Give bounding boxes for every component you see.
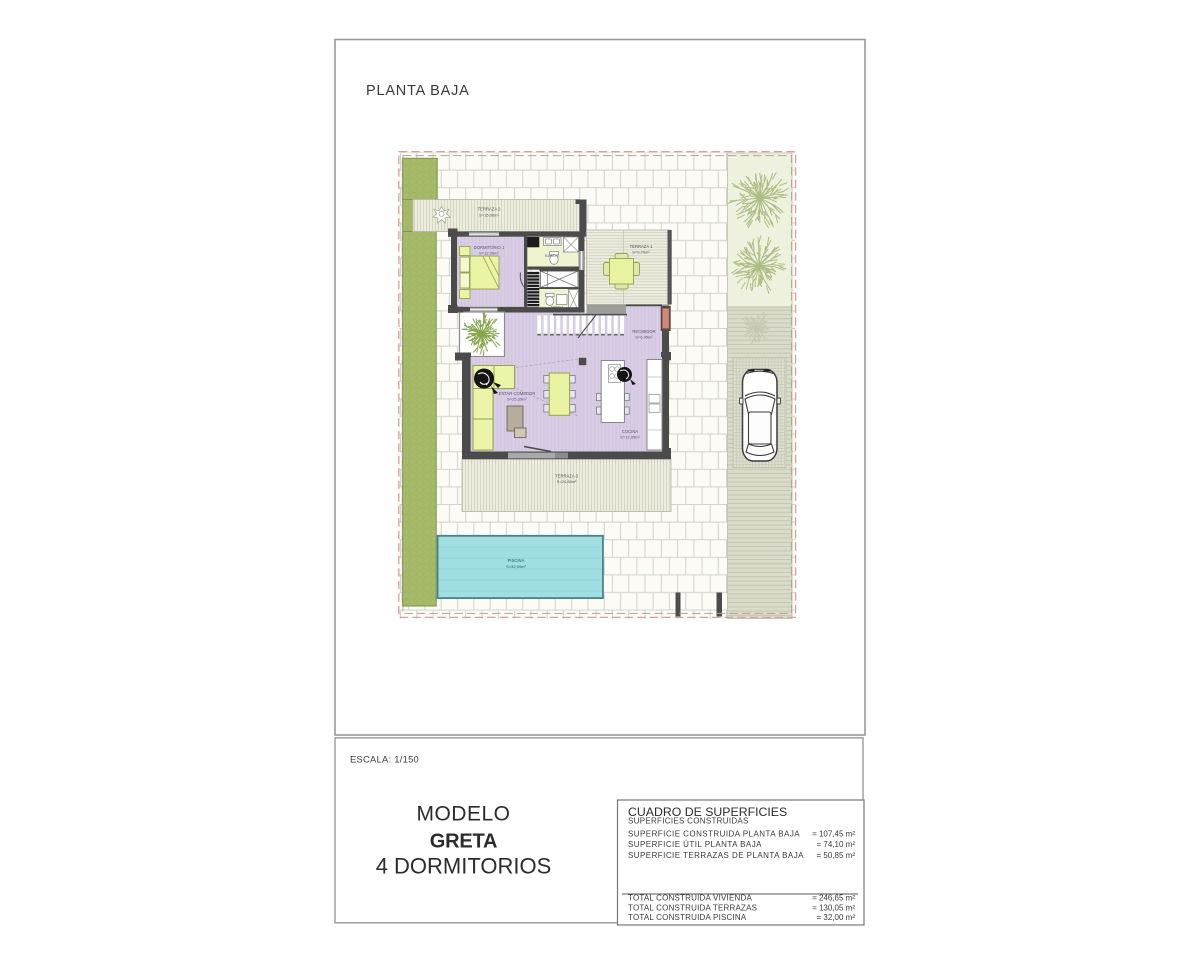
svg-text:SUPERFICIES CONSTRUIDAS: SUPERFICIES CONSTRUIDAS <box>628 817 749 826</box>
svg-text:4 DORMITORIOS: 4 DORMITORIOS <box>376 854 552 879</box>
svg-text:= 50,85 m²: = 50,85 m² <box>817 851 856 860</box>
svg-text:S=12,95m²: S=12,95m² <box>620 435 640 440</box>
svg-text:GRETA: GRETA <box>430 831 498 853</box>
svg-text:S=25,35m²: S=25,35m² <box>507 397 527 402</box>
svg-text:TERRAZA 2: TERRAZA 2 <box>478 207 501 212</box>
svg-text:S=24,85m²: S=24,85m² <box>557 479 577 484</box>
svg-text:SUPERFICIE ÚTIL PLANTA BAJA: SUPERFICIE ÚTIL PLANTA BAJA <box>628 840 762 849</box>
svg-text:= 32,00 m²: = 32,00 m² <box>817 913 856 922</box>
svg-text:ESTAR COMEDOR: ESTAR COMEDOR <box>499 391 536 396</box>
svg-text:TERRAZA 1: TERRAZA 1 <box>630 244 653 249</box>
svg-text:= 130,05 m²: = 130,05 m² <box>812 903 855 912</box>
svg-text:DORMITORIO 1: DORMITORIO 1 <box>474 245 505 250</box>
svg-text:ESCALA: 1/150: ESCALA: 1/150 <box>350 755 419 765</box>
svg-text:RECIBIDOR: RECIBIDOR <box>632 329 655 334</box>
svg-text:SUPERFICIE CONSTRUIDA PLANTA B: SUPERFICIE CONSTRUIDA PLANTA BAJA <box>628 829 800 838</box>
svg-text:S=12,06m²: S=12,06m² <box>479 251 499 256</box>
svg-text:MODELO: MODELO <box>416 803 510 826</box>
svg-text:PLANTA BAJA: PLANTA BAJA <box>366 83 470 99</box>
svg-text:S=32,00m²: S=32,00m² <box>506 564 526 569</box>
svg-text:= 107,45 m²: = 107,45 m² <box>812 829 855 838</box>
svg-text:S=6,45m²: S=6,45m² <box>635 335 653 340</box>
svg-text:S=9,70m²: S=9,70m² <box>632 250 650 255</box>
svg-text:= 246,65 m²: = 246,65 m² <box>812 894 855 903</box>
svg-text:TERRAZA 3: TERRAZA 3 <box>555 474 578 479</box>
svg-text:S=15,06m²: S=15,06m² <box>479 213 499 218</box>
svg-text:SUPERFICIE TERRAZAS DE PLANTA: SUPERFICIE TERRAZAS DE PLANTA BAJA <box>628 851 804 860</box>
svg-text:= 74,10 m²: = 74,10 m² <box>817 840 856 849</box>
svg-text:PISCINA: PISCINA <box>508 558 525 563</box>
svg-text:TOTAL CONSTRUIDA VIVIENDA: TOTAL CONSTRUIDA VIVIENDA <box>628 894 752 903</box>
svg-text:TOTAL CONSTRUIDA PISCINA: TOTAL CONSTRUIDA PISCINA <box>628 913 747 922</box>
svg-text:TOTAL CONSTRUIDA TERRAZAS: TOTAL CONSTRUIDA TERRAZAS <box>628 903 757 912</box>
svg-text:BAÑO 1: BAÑO 1 <box>545 253 559 258</box>
svg-text:COCINA: COCINA <box>622 429 638 434</box>
